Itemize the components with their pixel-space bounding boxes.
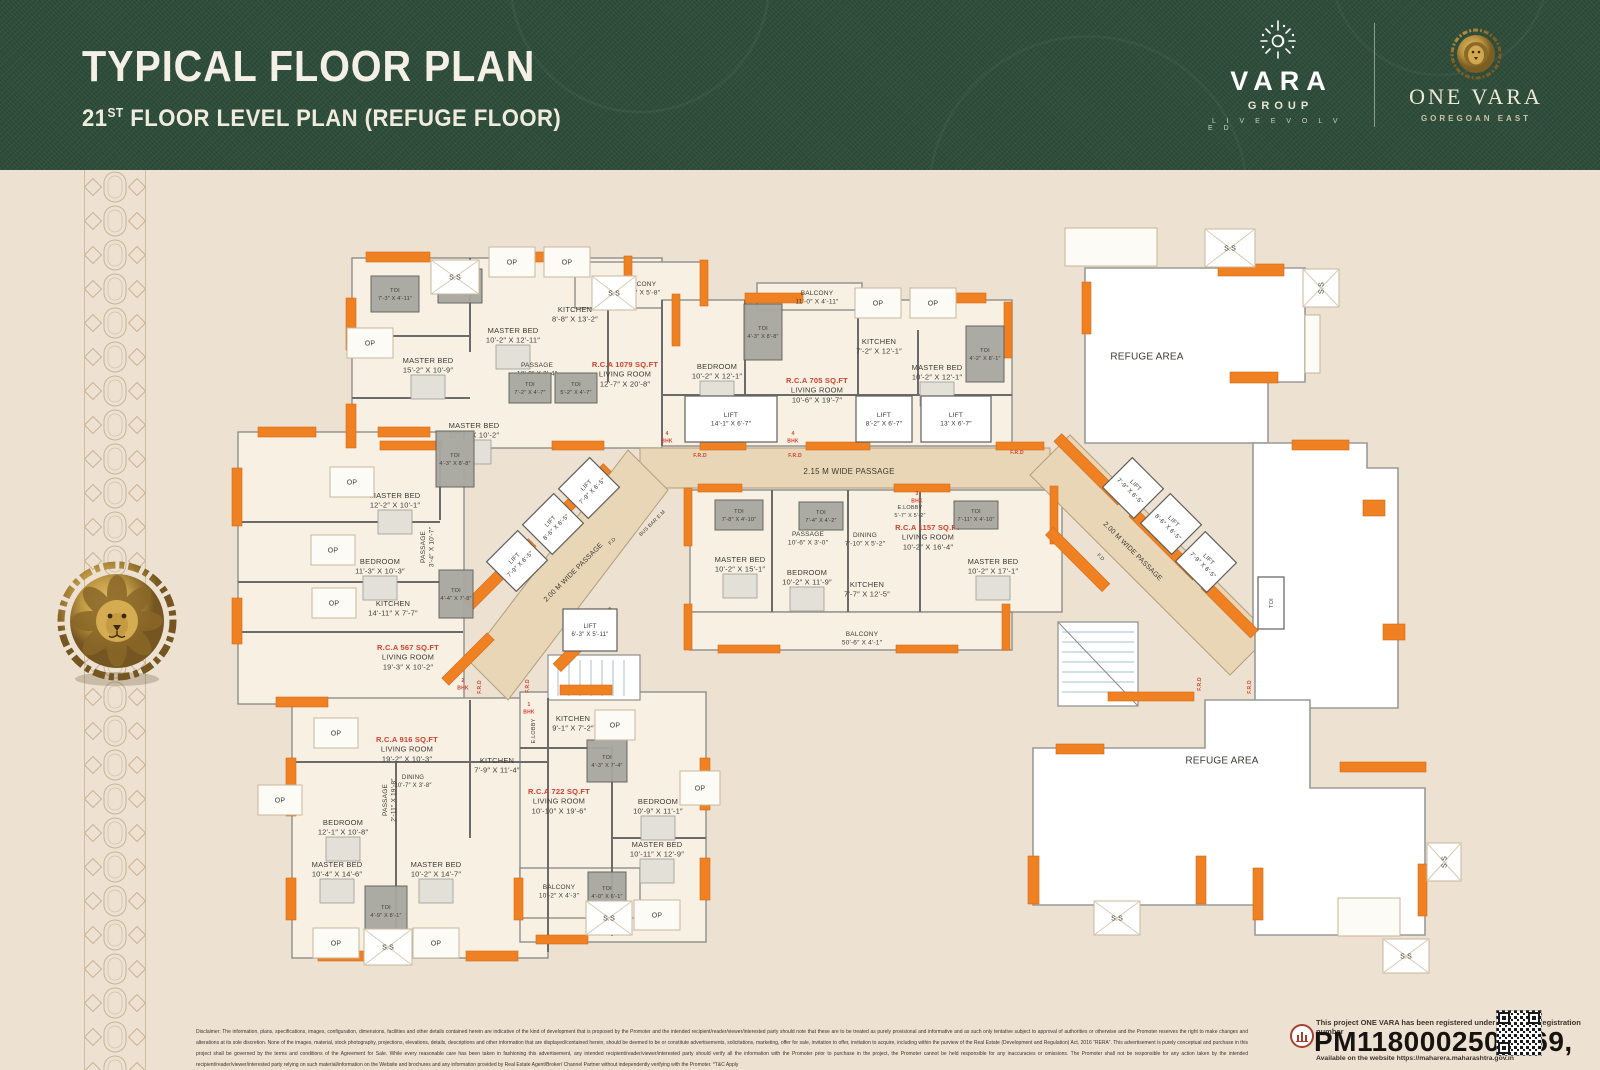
plan-label: TOI7'-8″ X 4'-10″ xyxy=(715,500,763,530)
plan-label: F.R.D xyxy=(1197,677,1203,691)
plan-label: S.S xyxy=(431,260,479,294)
svg-text:MASTER BED: MASTER BED xyxy=(632,840,683,849)
plan-label: E.LOBBY5'-7″ X 5'-2″ xyxy=(894,505,925,519)
disclaimer-text: Disclaimer: The information, plans, spec… xyxy=(196,1027,1248,1070)
svg-text:14'-11″ X 7'-7″: 14'-11″ X 7'-7″ xyxy=(368,608,418,617)
svg-text:TOI: TOI xyxy=(602,755,612,761)
svg-text:E.LOBBY: E.LOBBY xyxy=(531,718,537,743)
svg-text:BHK: BHK xyxy=(911,498,923,504)
svg-text:PASSAGE: PASSAGE xyxy=(420,531,427,563)
rera-website-line: Available on the website https://maharer… xyxy=(1316,1055,1514,1062)
svg-text:S.S: S.S xyxy=(1224,245,1236,252)
svg-text:F.R.D: F.R.D xyxy=(1247,680,1253,694)
svg-text:4'-2″ X 8'-1″: 4'-2″ X 8'-1″ xyxy=(969,356,1000,362)
svg-text:LIVING ROOM: LIVING ROOM xyxy=(533,797,585,806)
svg-text:13' X 6'-7″: 13' X 6'-7″ xyxy=(940,421,972,428)
svg-text:BALCONY: BALCONY xyxy=(846,631,879,638)
svg-text:14'-1″ X 6'-7″: 14'-1″ X 6'-7″ xyxy=(711,421,752,428)
svg-text:F.R.D: F.R.D xyxy=(1010,450,1024,456)
plan-label: REFUGE AREA xyxy=(1185,756,1258,767)
svg-text:OP: OP xyxy=(331,730,342,737)
svg-text:LIVING ROOM: LIVING ROOM xyxy=(381,745,433,754)
plan-label: LIFT6'-3″ X 5'-11″ xyxy=(563,609,617,651)
svg-text:MASTER BED: MASTER BED xyxy=(715,555,766,564)
svg-text:4'-0″ X 6'-1″: 4'-0″ X 6'-1″ xyxy=(591,894,622,900)
svg-text:OP: OP xyxy=(652,912,663,919)
svg-text:8'-2″ X 6'-7″: 8'-2″ X 6'-7″ xyxy=(866,421,903,428)
svg-text:8'-8″ X 13'-2″: 8'-8″ X 13'-2″ xyxy=(552,314,598,323)
plan-label: OP xyxy=(312,588,356,618)
svg-text:12'-1″ X 10'-8″: 12'-1″ X 10'-8″ xyxy=(318,827,369,836)
page-subtitle: 21ST FLOOR LEVEL PLAN (REFUGE FLOOR) xyxy=(82,105,561,133)
svg-text:MASTER BED: MASTER BED xyxy=(449,421,500,430)
svg-text:DINING: DINING xyxy=(853,532,877,539)
svg-text:10'-2″ X 14'-7″: 10'-2″ X 14'-7″ xyxy=(411,869,462,878)
svg-text:MASTER BED: MASTER BED xyxy=(370,491,421,500)
plan-label: S.S xyxy=(586,901,632,935)
svg-text:OP: OP xyxy=(431,940,442,947)
svg-text:MASTER BED: MASTER BED xyxy=(912,363,963,372)
svg-text:R.C.A 705 SQ.FT: R.C.A 705 SQ.FT xyxy=(786,376,848,385)
svg-text:F.R.D: F.R.D xyxy=(477,680,483,694)
svg-text:TOI: TOI xyxy=(980,348,990,354)
plan-label: BALCONY50'-6″ X 4'-1″ xyxy=(842,631,883,647)
svg-text:BHK: BHK xyxy=(523,709,535,715)
plan-label: S.S xyxy=(364,929,412,965)
svg-text:BHK: BHK xyxy=(457,685,469,691)
svg-text:R.C.A 1157 SQ.FT: R.C.A 1157 SQ.FT xyxy=(895,523,961,532)
svg-text:R.C.A 567 SQ.FT: R.C.A 567 SQ.FT xyxy=(377,643,439,652)
plan-label: KITCHEN8'-8″ X 13'-2″ xyxy=(552,305,598,324)
svg-text:4'-3″ X 8'-8″: 4'-3″ X 8'-8″ xyxy=(747,334,778,340)
plan-label: OP xyxy=(330,467,374,497)
svg-text:BHK: BHK xyxy=(661,438,673,444)
svg-text:TOI: TOI xyxy=(450,453,460,459)
svg-text:BEDROOM: BEDROOM xyxy=(360,557,400,566)
lion-medallion-icon xyxy=(1450,28,1502,80)
svg-text:4'-3″ X 8'-8″: 4'-3″ X 8'-8″ xyxy=(439,461,470,467)
plan-label: R.C.A 916 SQ.FTLIVING ROOM19'-2″ X 10'-3… xyxy=(376,735,438,763)
subtitle-ordinal: ST xyxy=(107,105,123,120)
plan-label: TOI4'-4″ X 7'-8″ xyxy=(439,570,473,618)
plan-label: PASSAGE10'-6″ X 3'-0″ xyxy=(788,531,829,547)
svg-text:LIVING ROOM: LIVING ROOM xyxy=(791,386,843,395)
svg-text:4'-3″ X 7'-4″: 4'-3″ X 7'-4″ xyxy=(591,763,622,769)
svg-text:S.S: S.S xyxy=(382,944,394,951)
svg-text:7'-3″ X 4'-11″: 7'-3″ X 4'-11″ xyxy=(378,296,412,302)
plan-label: BALCONY11'-0″ X 4'-11″ xyxy=(795,290,839,306)
svg-text:BEDROOM: BEDROOM xyxy=(787,568,827,577)
svg-text:7'-7″ X 12'-5″: 7'-7″ X 12'-5″ xyxy=(844,589,890,598)
plan-label: OP xyxy=(855,288,901,318)
plan-label: TOI4'-2″ X 8'-1″ xyxy=(966,326,1004,382)
svg-text:9'-1″ X 7'-2″: 9'-1″ X 7'-2″ xyxy=(552,723,594,732)
svg-text:2.15 M WIDE PASSAGE: 2.15 M WIDE PASSAGE xyxy=(803,467,894,476)
plan-label: OP xyxy=(314,718,358,748)
svg-text:R.C.A 916 SQ.FT: R.C.A 916 SQ.FT xyxy=(376,735,438,744)
plan-label: R.C.A 705 SQ.FTLIVING ROOM10'-6″ X 19'-7… xyxy=(786,376,848,404)
svg-text:BHK: BHK xyxy=(787,438,799,444)
plan-label: TOI4'-3″ X 8'-8″ xyxy=(744,304,782,360)
plan-label: OP xyxy=(680,771,720,805)
svg-text:TOI: TOI xyxy=(734,509,744,515)
logo-group: VARA GROUP L I V E E V O L V E D xyxy=(1208,18,1551,132)
svg-text:50'-6″ X 4'-1″: 50'-6″ X 4'-1″ xyxy=(842,640,883,647)
floor-plan-poster: MASTER BED15'-2″ X 10'-9″MASTER BED10'-2… xyxy=(0,0,1600,1070)
plan-label: KITCHEN7'-9″ X 11'-4″ xyxy=(474,756,520,775)
plan-label: OP xyxy=(313,928,359,958)
svg-text:BALCONY: BALCONY xyxy=(543,884,576,891)
svg-text:4'-4″ X 7'-8″: 4'-4″ X 7'-8″ xyxy=(440,596,471,602)
svg-text:OP: OP xyxy=(347,479,358,486)
svg-text:1: 1 xyxy=(528,702,531,708)
plan-label: S.S xyxy=(1094,901,1140,935)
svg-text:LIFT: LIFT xyxy=(877,412,891,419)
svg-text:19'-3″ X 10'-2″: 19'-3″ X 10'-2″ xyxy=(383,662,434,671)
plan-label: R.C.A 567 SQ.FTLIVING ROOM19'-3″ X 10'-2… xyxy=(377,643,439,671)
logo-divider xyxy=(1374,23,1375,127)
svg-text:R.C.A 722 SQ.FT: R.C.A 722 SQ.FT xyxy=(528,787,590,796)
plan-label: TOI7'-2″ X 4'-7″ xyxy=(509,373,551,403)
svg-text:11'-0″ X 4'-11″: 11'-0″ X 4'-11″ xyxy=(795,299,839,306)
svg-text:OP: OP xyxy=(329,600,340,607)
svg-text:7'-2″ X 4'-7″: 7'-2″ X 4'-7″ xyxy=(514,390,545,396)
svg-text:6'-3″ X 5'-11″: 6'-3″ X 5'-11″ xyxy=(572,632,610,638)
brand-tagline: L I V E E V O L V E D xyxy=(1208,118,1348,132)
plan-label: E.LOBBY xyxy=(531,718,537,743)
svg-text:KITCHEN: KITCHEN xyxy=(850,580,884,589)
svg-text:MASTER BED: MASTER BED xyxy=(403,356,454,365)
plan-label: TOI xyxy=(1258,577,1284,629)
brand-name: VARA xyxy=(1223,66,1333,97)
svg-text:4: 4 xyxy=(666,431,669,437)
plan-label: F.R.D xyxy=(1010,450,1024,456)
svg-text:10'-2″ X 16'-4″: 10'-2″ X 16'-4″ xyxy=(903,542,954,551)
subtitle-number: 21 xyxy=(82,105,107,132)
svg-text:KITCHEN: KITCHEN xyxy=(480,756,514,765)
svg-text:TOI: TOI xyxy=(390,288,400,294)
page-title: TYPICAL FLOOR PLAN xyxy=(82,42,535,92)
svg-text:OP: OP xyxy=(873,300,884,307)
svg-text:R.C.A 1079 SQ.FT: R.C.A 1079 SQ.FT xyxy=(592,360,658,369)
svg-text:OP: OP xyxy=(695,785,706,792)
plan-label: OP xyxy=(595,710,635,740)
plan-label: F.R.D xyxy=(477,680,483,694)
svg-text:S.S: S.S xyxy=(1318,282,1325,294)
plan-label: F.R.D xyxy=(693,453,707,459)
svg-text:PASSAGE: PASSAGE xyxy=(792,531,824,538)
svg-text:10'-2″ X 4'-3″: 10'-2″ X 4'-3″ xyxy=(539,893,580,900)
svg-text:LIFT: LIFT xyxy=(724,412,738,419)
plan-label: OP xyxy=(544,247,590,277)
svg-text:OP: OP xyxy=(331,940,342,947)
plan-label: TOI7'-11″ X 4'-10″ xyxy=(954,501,998,529)
svg-text:MASTER BED: MASTER BED xyxy=(312,860,363,869)
svg-text:LIVING ROOM: LIVING ROOM xyxy=(902,533,954,542)
svg-text:F.R.D: F.R.D xyxy=(525,679,531,693)
plan-label: S.S xyxy=(1303,269,1339,307)
svg-text:3'-4″ X 10'-7″: 3'-4″ X 10'-7″ xyxy=(429,526,436,567)
svg-text:OP: OP xyxy=(328,547,339,554)
svg-text:OP: OP xyxy=(507,259,518,266)
svg-text:TOI: TOI xyxy=(571,382,581,388)
lion-medallion xyxy=(56,560,178,688)
plan-label: TOI7'-3″ X 4'-11″ xyxy=(371,276,419,312)
project-location: GOREGOAN EAST xyxy=(1421,114,1531,123)
plan-label: OP xyxy=(258,785,302,815)
svg-text:KITCHEN: KITCHEN xyxy=(376,599,410,608)
svg-text:12'-7″ X 20'-8″: 12'-7″ X 20'-8″ xyxy=(600,379,651,388)
svg-text:19'-2″ X 10'-3″: 19'-2″ X 10'-3″ xyxy=(382,754,433,763)
svg-text:5'-7″ X 5'-2″: 5'-7″ X 5'-2″ xyxy=(894,513,925,519)
header-banner: TYPICAL FLOOR PLAN 21ST FLOOR LEVEL PLAN… xyxy=(0,0,1600,170)
svg-text:LIFT: LIFT xyxy=(583,624,596,630)
svg-text:OP: OP xyxy=(562,259,573,266)
plan-label: S.S xyxy=(1427,843,1461,881)
svg-text:KITCHEN: KITCHEN xyxy=(558,305,592,314)
svg-text:10'-6″ X 3'-0″: 10'-6″ X 3'-0″ xyxy=(788,540,829,547)
svg-text:OP: OP xyxy=(275,797,286,804)
svg-text:2: 2 xyxy=(462,678,465,684)
plan-label: KITCHEN7'-7″ X 12'-5″ xyxy=(844,580,890,599)
plan-label: OP xyxy=(413,928,459,958)
svg-text:TOI: TOI xyxy=(451,588,461,594)
svg-text:7'-10″ X 5'-2″: 7'-10″ X 5'-2″ xyxy=(845,541,886,548)
qr-code xyxy=(1496,1010,1542,1056)
svg-text:TOI: TOI xyxy=(816,510,826,516)
plan-label: REFUGE AREA xyxy=(1110,352,1183,363)
svg-text:OP: OP xyxy=(928,300,939,307)
svg-text:10'-6″ X 19'-7″: 10'-6″ X 19'-7″ xyxy=(792,395,843,404)
svg-text:PASSAGE: PASSAGE xyxy=(382,784,389,816)
plan-label: F.D xyxy=(1095,553,1105,563)
svg-text:BEDROOM: BEDROOM xyxy=(697,362,737,371)
svg-text:12'-2″ X 10'-1″: 12'-2″ X 10'-1″ xyxy=(370,500,421,509)
plan-label: OP xyxy=(634,900,680,930)
svg-text:15'-2″ X 10'-9″: 15'-2″ X 10'-9″ xyxy=(403,365,454,374)
plan-label: R.C.A 1079 SQ.FTLIVING ROOM12'-7″ X 20'-… xyxy=(592,360,658,388)
svg-text:OP: OP xyxy=(365,340,376,347)
svg-text:REFUGE AREA: REFUGE AREA xyxy=(1185,756,1258,767)
plan-label: F.R.D xyxy=(525,679,531,693)
plan-label: LIFT14'-1″ X 6'-7″ xyxy=(685,396,777,442)
svg-text:7'-11″ X 4'-10″: 7'-11″ X 4'-10″ xyxy=(957,517,994,523)
plan-label: R.C.A 1157 SQ.FTLIVING ROOM10'-2″ X 16'-… xyxy=(895,523,961,551)
plan-label: S.S xyxy=(592,276,636,310)
plan-label: LIFT8'-2″ X 6'-7″ xyxy=(856,396,912,442)
svg-text:TOI: TOI xyxy=(971,509,981,515)
svg-text:11'-3″ X 10'-3″: 11'-3″ X 10'-3″ xyxy=(355,566,405,575)
svg-text:7'-8″ X 4'-10″: 7'-8″ X 4'-10″ xyxy=(722,517,756,523)
svg-text:10'-10″ X 19'-6″: 10'-10″ X 19'-6″ xyxy=(532,806,587,815)
svg-text:10'-9″ X 11'-1″: 10'-9″ X 11'-1″ xyxy=(633,806,683,815)
plan-label: OP xyxy=(910,288,956,318)
svg-text:F.R.D: F.R.D xyxy=(693,453,707,459)
svg-text:TOI: TOI xyxy=(602,886,612,892)
maharera-logo-icon xyxy=(1290,1024,1314,1048)
svg-text:TOI: TOI xyxy=(1269,598,1275,608)
plan-label: OP xyxy=(311,535,355,565)
svg-text:E.LOBBY: E.LOBBY xyxy=(898,505,923,511)
one-vara-logo: ONE VARA GOREGOAN EAST xyxy=(1401,28,1551,123)
plan-label: F.R.D xyxy=(1247,680,1253,694)
plan-label: TOI4'-3″ X 7'-4″ xyxy=(587,740,627,782)
subtitle-rest: FLOOR LEVEL PLAN (REFUGE FLOOR) xyxy=(124,105,562,132)
svg-text:S.S: S.S xyxy=(608,290,620,297)
svg-text:10'-2″ X 11'-9″: 10'-2″ X 11'-9″ xyxy=(782,577,832,586)
svg-text:BALCONY: BALCONY xyxy=(801,290,834,297)
svg-text:LIFT: LIFT xyxy=(949,412,963,419)
plan-label: LIFT13' X 6'-7″ xyxy=(921,396,991,442)
plan-label: PASSAGE3'-4″ X 10'-7″ xyxy=(420,526,436,567)
svg-text:PASSAGE: PASSAGE xyxy=(521,362,553,369)
svg-text:F.R.D: F.R.D xyxy=(788,453,802,459)
svg-text:7'-2″ X 12'-1″: 7'-2″ X 12'-1″ xyxy=(856,346,902,355)
svg-text:4: 4 xyxy=(792,431,795,437)
plan-label: TOI5'-2″ X 4'-7″ xyxy=(555,373,597,403)
plan-label: S.S xyxy=(1383,939,1429,973)
svg-text:7'-9″ X 11'-4″: 7'-9″ X 11'-4″ xyxy=(474,765,520,774)
plan-label: S.S xyxy=(1205,229,1255,267)
plan-label: F.R.D xyxy=(788,453,802,459)
svg-text:10'-2″ X 12'-1″: 10'-2″ X 12'-1″ xyxy=(692,371,743,380)
plan-label: KITCHEN7'-2″ X 12'-1″ xyxy=(856,337,902,356)
plan-label: TOI7'-4″ X 4'-2″ xyxy=(799,502,843,530)
svg-text:S.S: S.S xyxy=(1400,953,1412,960)
svg-text:10'-2″ X 12'-11″: 10'-2″ X 12'-11″ xyxy=(486,335,540,344)
plan-label: OP xyxy=(347,328,393,358)
svg-text:10'-2″ X 15'-1″: 10'-2″ X 15'-1″ xyxy=(715,564,766,573)
svg-text:4'-9″ X 8'-1″: 4'-9″ X 8'-1″ xyxy=(370,913,401,919)
svg-text:DINING: DINING xyxy=(402,775,424,781)
svg-text:10'-2″ X 17'-1″: 10'-2″ X 17'-1″ xyxy=(968,566,1019,575)
svg-text:3: 3 xyxy=(916,491,919,497)
plan-label: R.C.A 722 SQ.FTLIVING ROOM10'-10″ X 19'-… xyxy=(528,787,590,815)
svg-text:TOI: TOI xyxy=(525,382,535,388)
plan-label: 2.15 M WIDE PASSAGE xyxy=(803,467,894,476)
svg-text:REFUGE AREA: REFUGE AREA xyxy=(1110,352,1183,363)
svg-text:KITCHEN: KITCHEN xyxy=(862,337,896,346)
svg-text:S.S: S.S xyxy=(449,274,461,281)
plan-label: TOI4'-3″ X 8'-8″ xyxy=(436,431,474,487)
svg-text:LIVING ROOM: LIVING ROOM xyxy=(599,370,651,379)
svg-text:MASTER BED: MASTER BED xyxy=(411,860,462,869)
svg-text:5'-2″ X 4'-7″: 5'-2″ X 4'-7″ xyxy=(560,390,591,396)
svg-text:TOI: TOI xyxy=(381,905,391,911)
svg-text:S.S: S.S xyxy=(1111,915,1123,922)
plan-label: BALCONY10'-2″ X 4'-3″ xyxy=(539,884,580,900)
svg-text:MASTER BED: MASTER BED xyxy=(968,557,1019,566)
plan-label: KITCHEN9'-1″ X 7'-2″ xyxy=(552,714,594,733)
svg-text:BEDROOM: BEDROOM xyxy=(323,818,363,827)
svg-text:10'-2″ X 12'-1″: 10'-2″ X 12'-1″ xyxy=(912,372,963,381)
svg-text:LIVING ROOM: LIVING ROOM xyxy=(382,653,434,662)
svg-text:10'-7″ X 3'-8″: 10'-7″ X 3'-8″ xyxy=(394,783,432,789)
brand-sub: GROUP xyxy=(1243,100,1313,112)
vara-starburst-icon xyxy=(1255,18,1301,64)
vara-group-logo: VARA GROUP L I V E E V O L V E D xyxy=(1208,18,1348,132)
svg-text:F.D: F.D xyxy=(1095,553,1105,563)
svg-text:F.R.D: F.R.D xyxy=(1197,677,1203,691)
svg-text:TOI: TOI xyxy=(758,326,768,332)
plan-label: OP xyxy=(489,247,535,277)
svg-text:BEDROOM: BEDROOM xyxy=(638,797,678,806)
svg-text:S.S: S.S xyxy=(603,915,615,922)
svg-text:10'-4″ X 14'-6″: 10'-4″ X 14'-6″ xyxy=(312,869,363,878)
svg-text:KITCHEN: KITCHEN xyxy=(556,714,590,723)
svg-text:10'-11″ X 12'-9″: 10'-11″ X 12'-9″ xyxy=(630,849,684,858)
svg-text:S.S: S.S xyxy=(1441,856,1448,868)
project-name: ONE VARA xyxy=(1409,84,1543,110)
svg-text:7'-4″ X 4'-2″: 7'-4″ X 4'-2″ xyxy=(805,518,836,524)
svg-text:OP: OP xyxy=(610,722,621,729)
svg-text:MASTER BED: MASTER BED xyxy=(488,326,539,335)
